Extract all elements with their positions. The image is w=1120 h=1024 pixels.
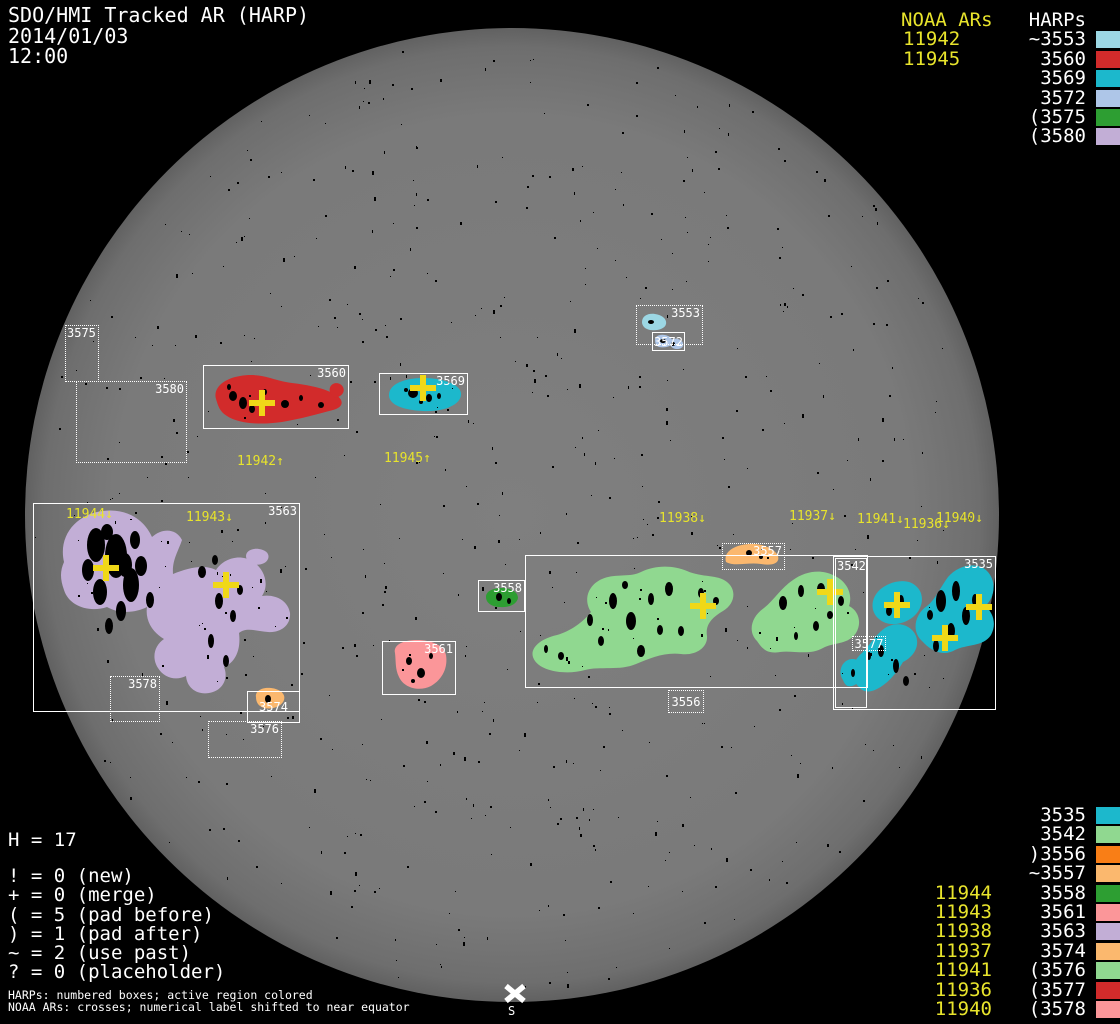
harp-color-swatch bbox=[1096, 865, 1120, 882]
harp-legend-item: ~3553 bbox=[998, 30, 1086, 49]
harp-legend-item: 3535 bbox=[998, 806, 1086, 825]
harp-legend-item: 3574 bbox=[998, 942, 1086, 961]
harp-legend-item: 3572 bbox=[998, 89, 1086, 108]
status-legend-line: ? = 0 (placeholder) bbox=[8, 963, 225, 982]
harp-legend-item: 3560 bbox=[998, 50, 1086, 69]
harp-color-swatch bbox=[1096, 51, 1120, 68]
noaa-ars-header: NOAA ARs bbox=[901, 11, 993, 30]
harp-color-swatch bbox=[1096, 904, 1120, 921]
harp-color-swatch bbox=[1096, 826, 1120, 843]
harp-color-swatch bbox=[1096, 1001, 1120, 1018]
status-legend: ! = 0 (new)+ = 0 (merge)( = 5 (pad befor… bbox=[8, 867, 225, 983]
footer-note: HARPs: numbered boxes; active region col… bbox=[8, 990, 410, 1013]
harp-color-swatch bbox=[1096, 807, 1120, 824]
harp-legend-item: 3561 bbox=[998, 903, 1086, 922]
noaa-ar-item: 11945 bbox=[903, 50, 960, 69]
harp-legend-item: 3542 bbox=[998, 825, 1086, 844]
harp-color-swatch bbox=[1096, 923, 1120, 940]
south-label: S bbox=[508, 1004, 515, 1018]
solar-harp-viewer: 3575358035533572356035693563357835743576… bbox=[0, 0, 1120, 1024]
harp-legend-item: )3556 bbox=[998, 845, 1086, 864]
harp-legend-item: 3569 bbox=[998, 69, 1086, 88]
harp-count: H = 17 bbox=[8, 829, 77, 851]
harp-color-swatch bbox=[1096, 90, 1120, 107]
harp-color-swatch bbox=[1096, 128, 1120, 145]
harp-legend-item: (3578 bbox=[998, 1000, 1086, 1019]
harp-color-swatch bbox=[1096, 70, 1120, 87]
noaa-ar-item: 11936 bbox=[918, 981, 992, 1000]
noaa-ar-item: 11943 bbox=[918, 903, 992, 922]
status-legend-line: + = 0 (merge) bbox=[8, 886, 225, 905]
harp-legend-item: (3577 bbox=[998, 981, 1086, 1000]
noaa-ar-item: 11937 bbox=[918, 942, 992, 961]
noaa-ar-item: 11942 bbox=[903, 30, 960, 49]
noaa-ar-item: 11944 bbox=[918, 884, 992, 903]
harp-legend-item: ~3557 bbox=[998, 864, 1086, 883]
noaa-ar-item: 11941 bbox=[918, 961, 992, 980]
page-title: SDO/HMI Tracked AR (HARP) 2014/01/03 12:… bbox=[8, 5, 309, 67]
harp-legend-item: 3563 bbox=[998, 922, 1086, 941]
noaa-ar-item: 11938 bbox=[918, 922, 992, 941]
harp-legend-item: (3575 bbox=[998, 108, 1086, 127]
harp-legend-item: (3580 bbox=[998, 127, 1086, 146]
harp-color-swatch bbox=[1096, 31, 1120, 48]
harp-legend-item: (3576 bbox=[998, 961, 1086, 980]
harp-color-swatch bbox=[1096, 846, 1120, 863]
harps-header: HARPs bbox=[998, 11, 1086, 30]
title-line3: 12:00 bbox=[8, 44, 68, 68]
harp-color-swatch bbox=[1096, 982, 1120, 999]
status-legend-line: ( = 5 (pad before) bbox=[8, 906, 225, 925]
footer-line2: NOAA ARs: crosses; numerical label shift… bbox=[8, 1000, 410, 1014]
noaa-ar-item: 11940 bbox=[918, 1000, 992, 1019]
harp-color-swatch bbox=[1096, 109, 1120, 126]
harp-color-swatch bbox=[1096, 962, 1120, 979]
harp-color-swatch bbox=[1096, 943, 1120, 960]
hud-layer: SDO/HMI Tracked AR (HARP) 2014/01/03 12:… bbox=[0, 0, 1120, 1024]
harp-color-swatch bbox=[1096, 885, 1120, 902]
harp-legend-item: 3558 bbox=[998, 884, 1086, 903]
